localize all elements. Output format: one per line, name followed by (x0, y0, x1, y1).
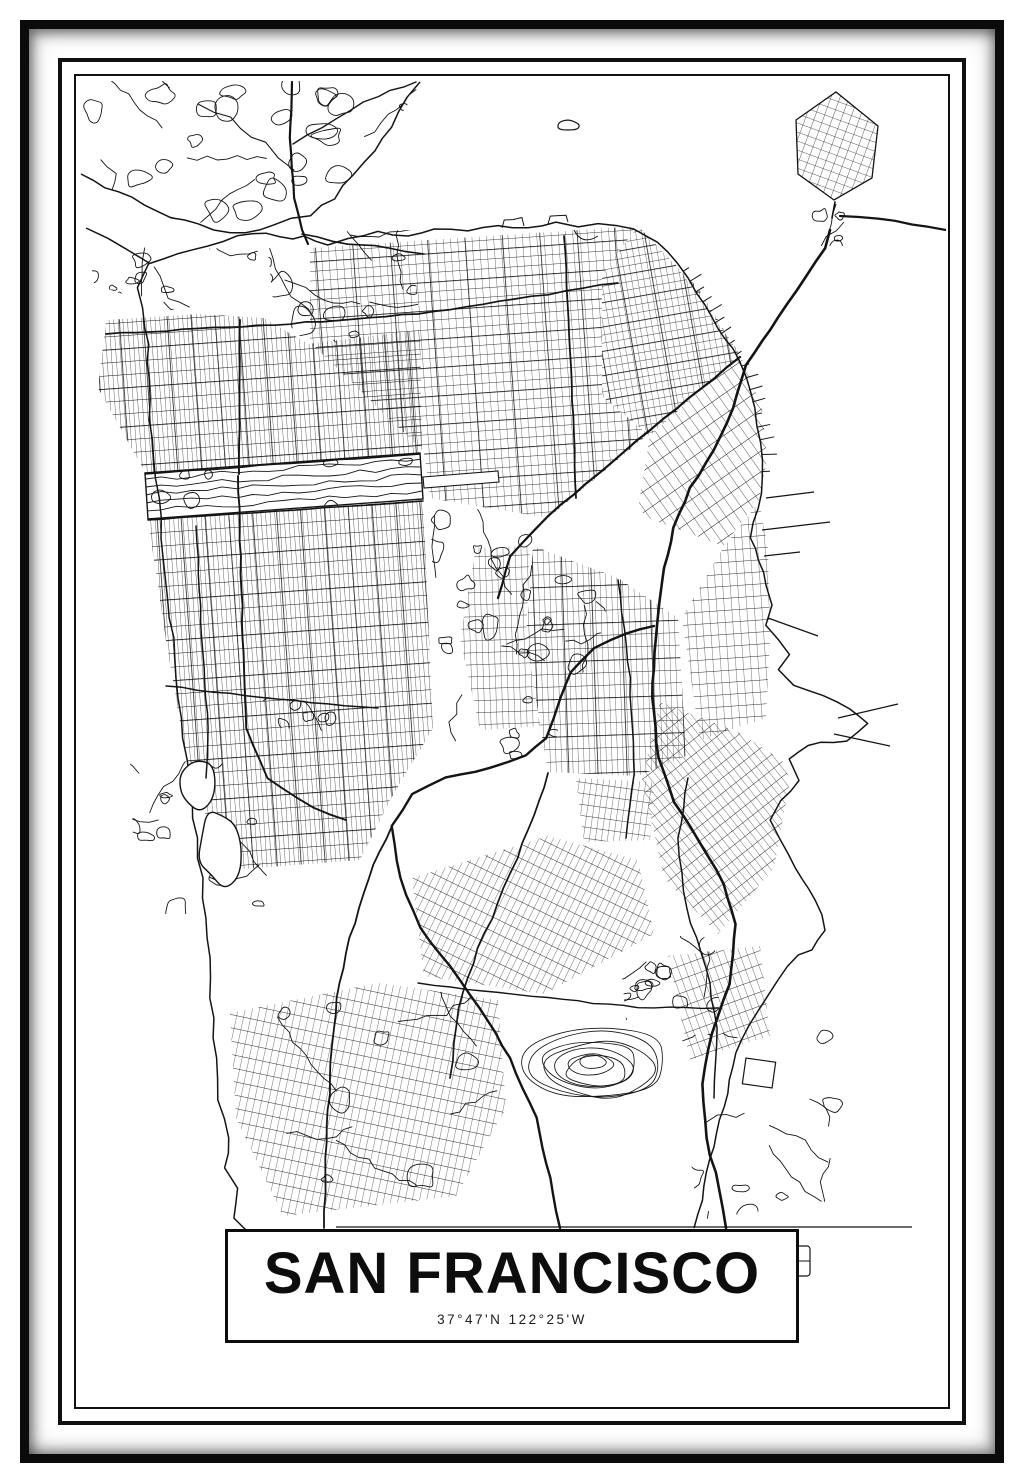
san-francisco-map (78, 78, 946, 1405)
islands (502, 120, 598, 240)
mountain-contours (522, 1028, 663, 1098)
poster-coordinates: 37°47'N 122°25'W (437, 1312, 587, 1327)
map-title-box: SAN FRANCISCO 37°47'N 122°25'W (225, 1229, 799, 1343)
poster-title: SAN FRANCISCO (264, 1245, 760, 1303)
